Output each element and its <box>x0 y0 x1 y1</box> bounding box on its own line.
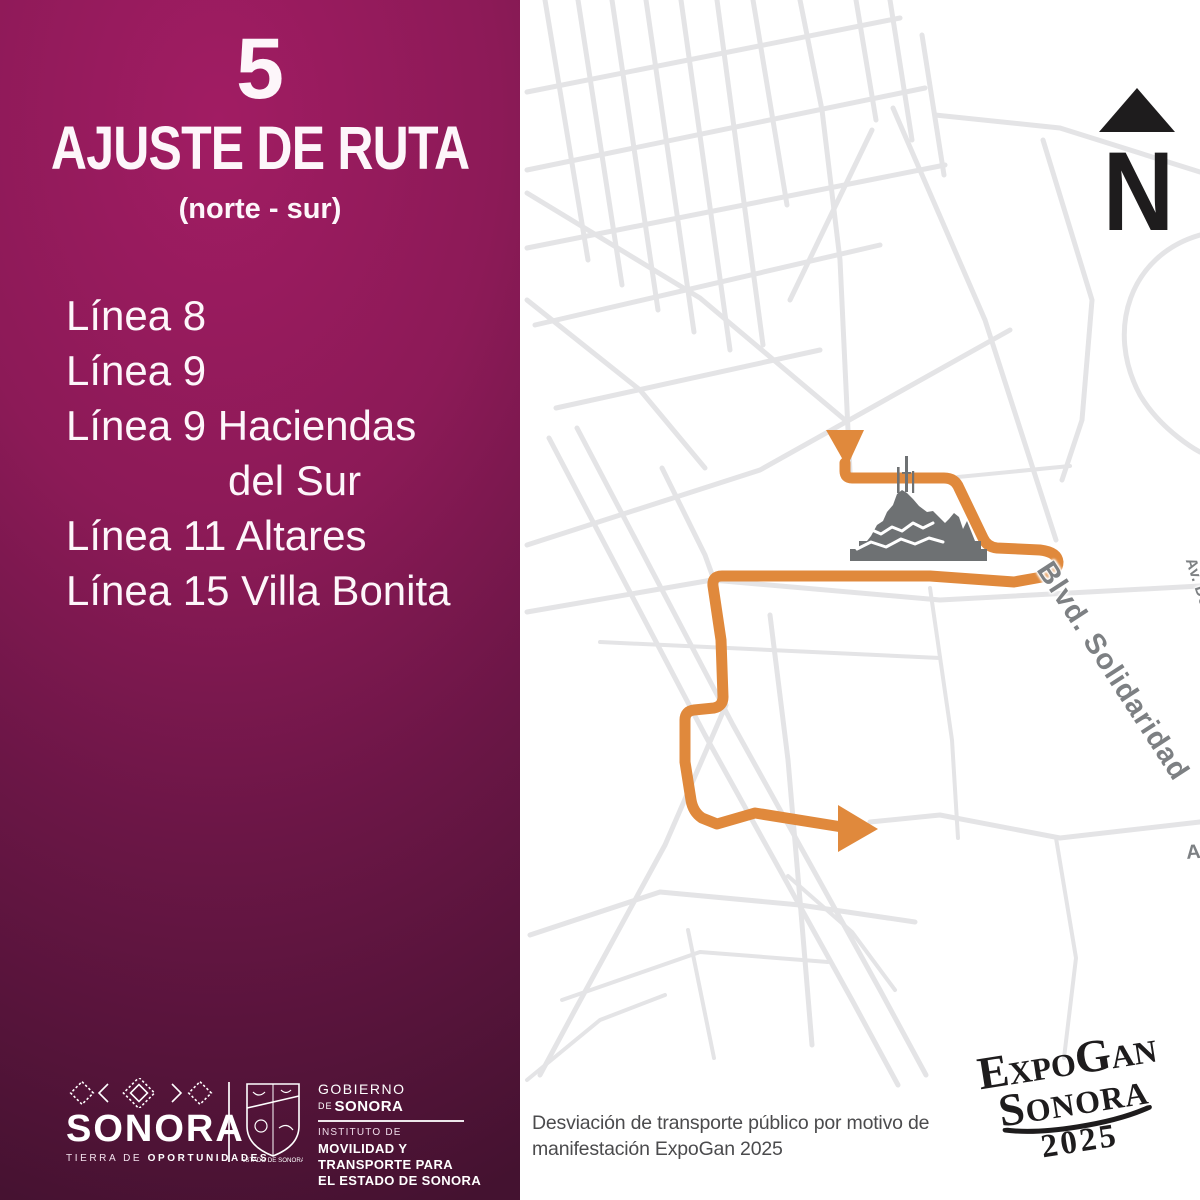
north-arrow-icon: N <box>1098 86 1176 238</box>
diamond-ornament-icon <box>68 1078 214 1108</box>
north-letter: N <box>1103 146 1174 238</box>
instituto-label: INSTITUTO DE <box>318 1128 481 1138</box>
government-text-block: GOBIERNO DESONORA INSTITUTO DE MOVILIDAD… <box>318 1082 481 1189</box>
sonora-tagline: TIERRA DE OPORTUNIDADES <box>66 1153 216 1164</box>
panel-footer: SONORA TIERRA DE OPORTUNIDADES ESTADO <box>0 1072 520 1182</box>
estado-label: EL ESTADO DE SONORA <box>318 1173 481 1189</box>
list-item: Línea 8 <box>66 288 451 343</box>
transporte-label: TRANSPORTE PARA <box>318 1157 481 1173</box>
footer-rule <box>318 1120 464 1122</box>
route-adjustment-poster: 5 AJUSTE DE RUTA (norte - sur) Línea 8 L… <box>0 0 1200 1200</box>
detour-route <box>685 430 1058 852</box>
sonora-wordmark: SONORA <box>66 1110 216 1148</box>
list-item: Línea 15 Villa Bonita <box>66 563 451 618</box>
sonora-brand-logo: SONORA TIERRA DE OPORTUNIDADES <box>66 1078 216 1164</box>
route-end-arrow-icon <box>838 805 878 852</box>
caption-text: Desviación de transporte público por mot… <box>532 1110 972 1163</box>
north-triangle-icon <box>1098 86 1176 133</box>
left-info-panel: 5 AJUSTE DE RUTA (norte - sur) Línea 8 L… <box>0 0 527 1200</box>
panel-header: 5 AJUSTE DE RUTA (norte - sur) <box>0 26 520 226</box>
list-item: del Sur <box>66 453 451 508</box>
list-item: Línea 11 Altares <box>66 508 451 563</box>
list-item: Línea 9 Haciendas <box>66 398 451 453</box>
affected-lines-list: Línea 8 Línea 9 Línea 9 Haciendas del Su… <box>66 288 451 618</box>
route-direction: (norte - sur) <box>0 193 520 226</box>
footer-divider <box>228 1082 230 1162</box>
route-path <box>685 463 1058 827</box>
route-number: 5 <box>0 26 520 112</box>
list-item: Línea 9 <box>66 343 451 398</box>
svg-text:ESTADO DE SONORA: ESTADO DE SONORA <box>243 1157 303 1164</box>
route-start-arrow-icon <box>826 430 864 467</box>
sonora-coat-of-arms-icon: ESTADO DE SONORA <box>243 1080 303 1164</box>
route-title: AJUSTE DE RUTA <box>0 118 520 179</box>
gobierno-label: GOBIERNO <box>318 1082 481 1096</box>
de-sonora-label: DESONORA <box>318 1099 481 1114</box>
movilidad-label: MOVILIDAD Y <box>318 1141 481 1157</box>
